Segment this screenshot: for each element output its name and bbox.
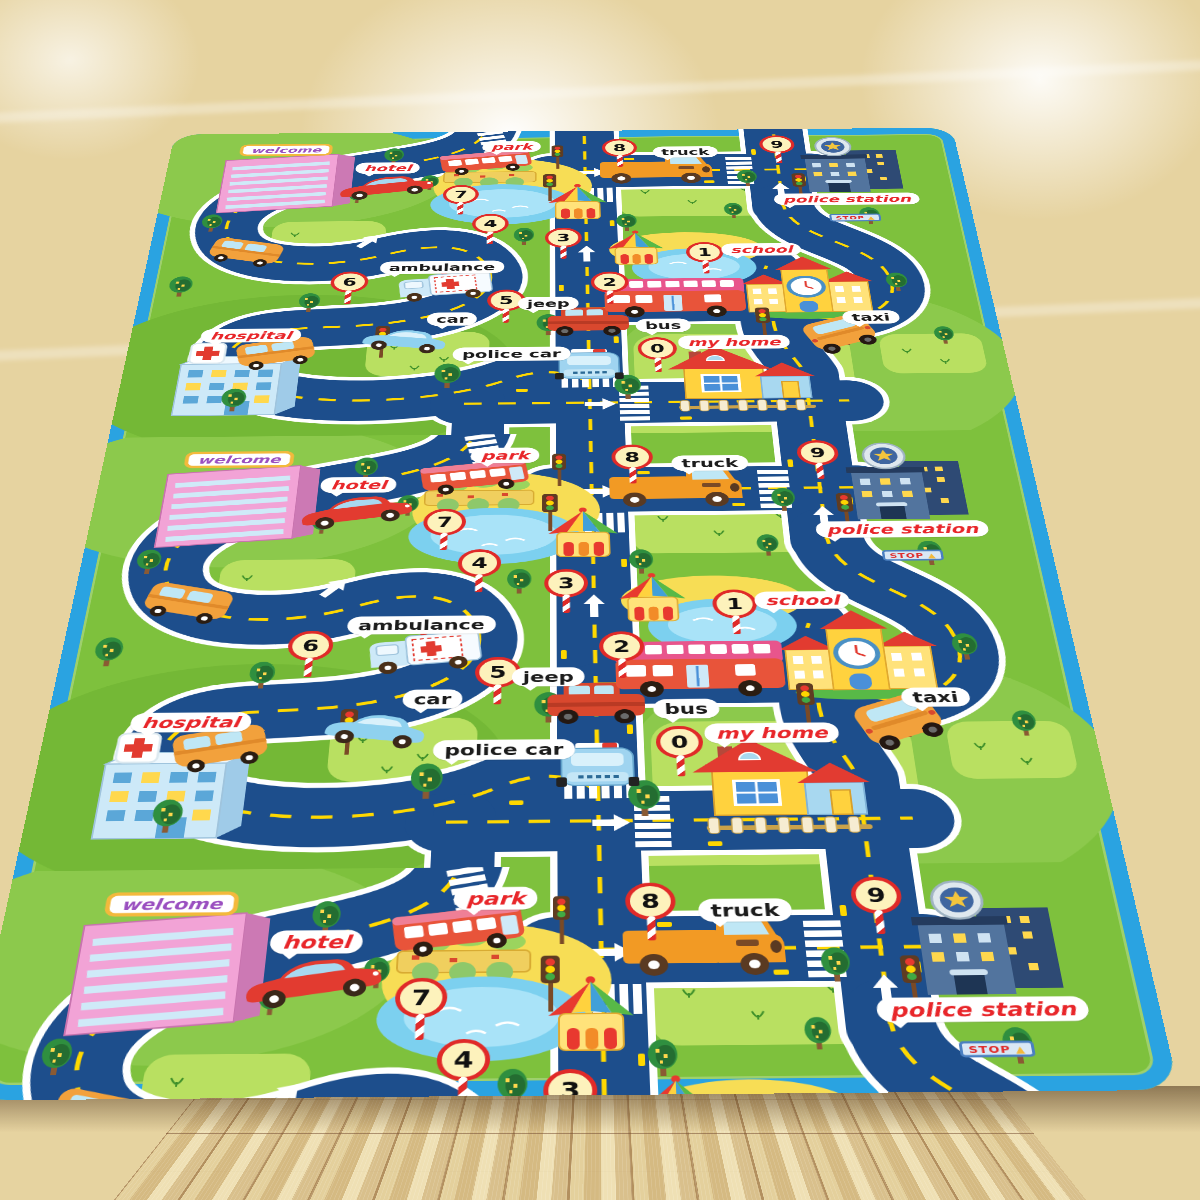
- taxi-label: taxi: [842, 310, 901, 324]
- truck-label: truck: [671, 455, 748, 471]
- police-station-building: [798, 137, 904, 192]
- school-label: school: [721, 243, 802, 256]
- police-car-label: police car: [433, 739, 575, 760]
- my-home-label: my home: [704, 722, 840, 743]
- car-label: car: [402, 689, 463, 709]
- park-label: park: [471, 447, 540, 463]
- stop-sign: STOP: [958, 1041, 1036, 1058]
- product-photo-scene: welcomehotelpark8truck9police stationSTO…: [0, 0, 1200, 1200]
- hospital-label: hospital: [200, 328, 302, 342]
- welcome-sign: welcome: [183, 451, 294, 468]
- police-station-building: [906, 881, 1065, 995]
- hotel-label: hotel: [269, 930, 364, 954]
- mat-perspective-wrap: welcomehotelpark8truck9police stationSTO…: [0, 128, 1179, 1101]
- welcome-sign: welcome: [104, 891, 240, 916]
- ambulance-label: ambulance: [379, 261, 504, 275]
- park-label: park: [454, 887, 538, 910]
- jeep-label: jeep: [512, 667, 585, 686]
- jeep-label: jeep: [518, 297, 579, 311]
- police-station-building: [842, 443, 969, 520]
- hotel-building: [216, 154, 355, 213]
- welcome-sign: welcome: [239, 144, 333, 157]
- bus-label: bus: [653, 699, 720, 719]
- police-station-label: police station: [815, 520, 990, 538]
- my-home-label: my home: [678, 335, 791, 350]
- mat-tile: welcomehotelpark8truck9police stationSTO…: [14, 430, 1125, 872]
- police-station-label: police station: [773, 192, 920, 205]
- stop-sign: STOP: [882, 550, 945, 561]
- school-label: school: [754, 591, 851, 609]
- taxi-label: taxi: [900, 687, 971, 707]
- bus-label: bus: [636, 318, 691, 332]
- hospital-label: hospital: [129, 712, 252, 733]
- police-car-label: police car: [452, 347, 570, 362]
- hotel-label: hotel: [320, 477, 397, 493]
- hotel-building: [64, 913, 271, 1036]
- stop-sign: STOP: [829, 214, 881, 222]
- park-label: park: [482, 141, 540, 153]
- police-station-label: police station: [875, 996, 1090, 1023]
- hotel-label: hotel: [355, 162, 420, 174]
- hotel-building: [155, 465, 321, 547]
- mat: welcomehotelpark8truck9police stationSTO…: [0, 128, 1179, 1101]
- car-label: car: [427, 312, 477, 326]
- truck-label: truck: [653, 146, 718, 158]
- truck-label: truck: [698, 898, 793, 922]
- mat-rotation-wrap: welcomehotelpark8truck9police stationSTO…: [0, 0, 1200, 1200]
- mat-tile: welcomehotelpark8truck9police stationSTO…: [0, 862, 1179, 1101]
- mat-tile: welcomehotelpark8truck9police stationSTO…: [109, 128, 1024, 438]
- ambulance-label: ambulance: [347, 615, 496, 634]
